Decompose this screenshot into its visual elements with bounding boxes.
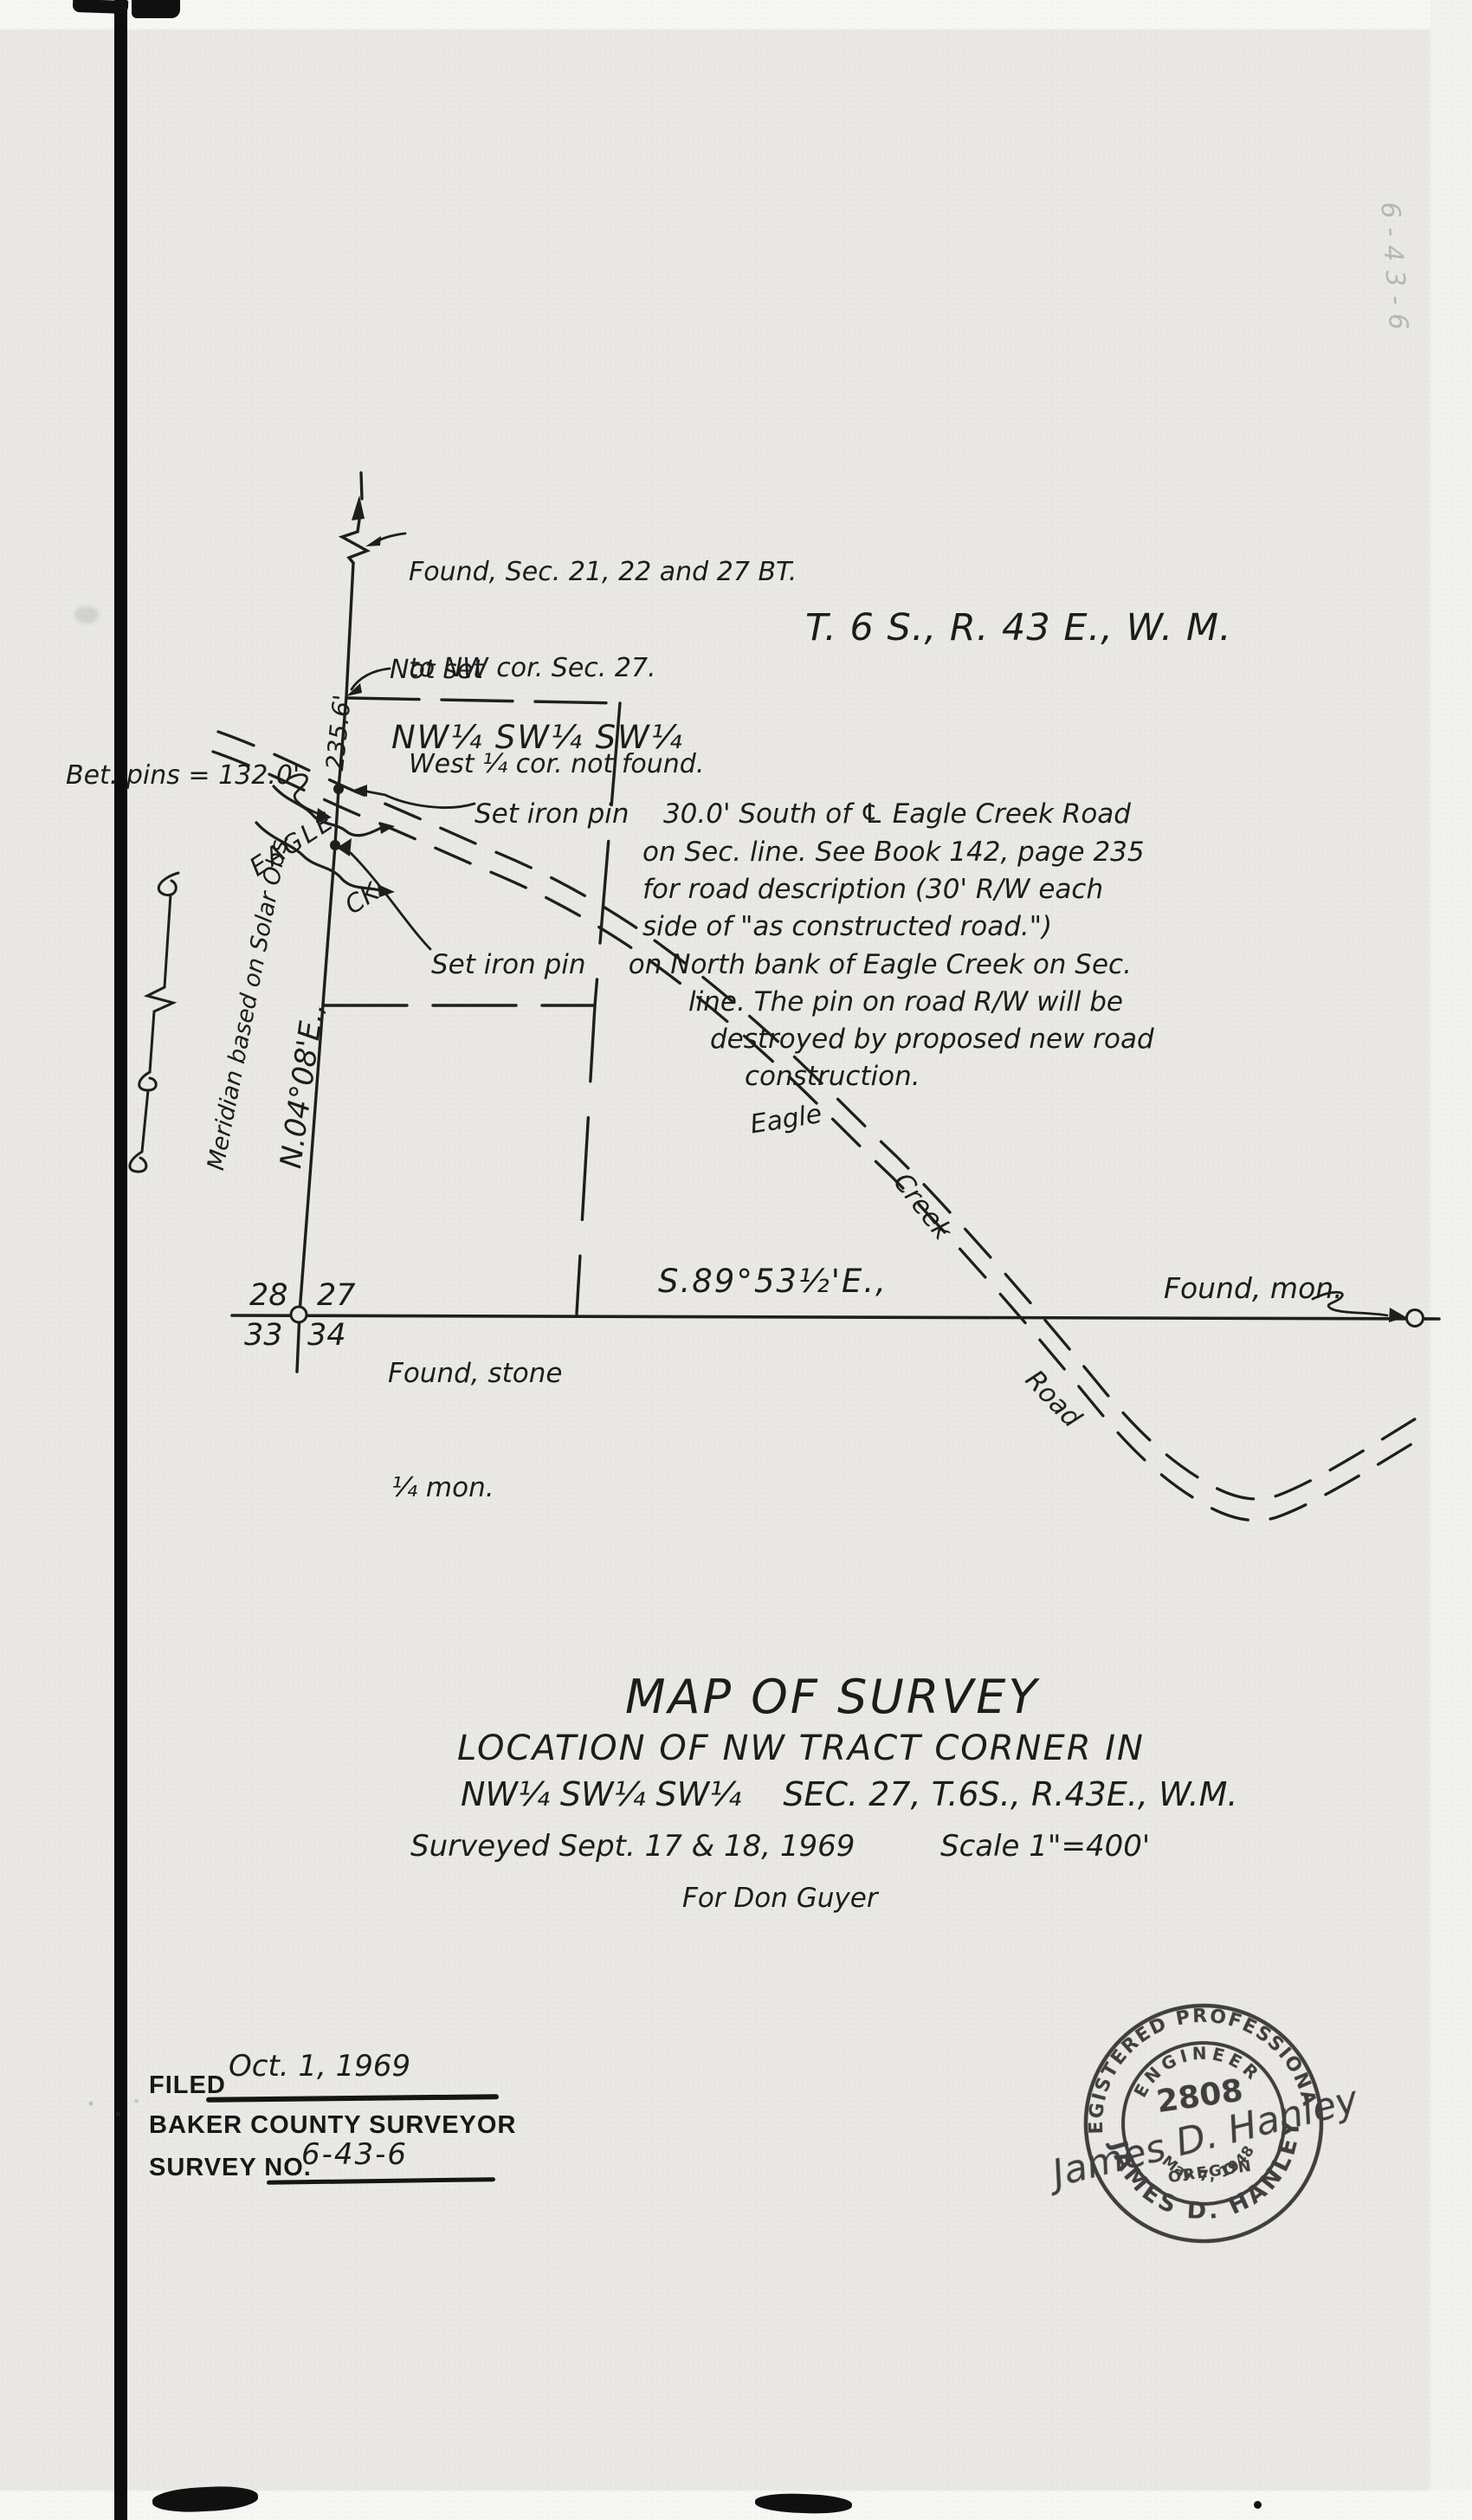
map-subtitle: LOCATION OF NW TRACT CORNER IN: [457, 1728, 1145, 1768]
found-stone-line: ¼ mon.: [391, 1469, 562, 1507]
map-survey-date: Surveyed Sept. 17 & 18, 1969: [410, 1829, 855, 1864]
filed-date: Oct. 1, 1969: [229, 2049, 410, 2084]
iron-pin-road: [333, 784, 344, 794]
corner-note-line: Found, Sec. 21, 22 and 27 BT.: [409, 556, 797, 588]
stamp-arc-top: REGISTERED PROFESSIONAL: [0, 0, 1320, 2291]
creek-pin-note-line: line. The pin on road R/W will be: [688, 986, 1123, 1018]
road-pin-note-line: on Sec. line. See Book 142, page 235: [642, 837, 1145, 868]
map-scale: Scale 1"=400': [940, 1829, 1150, 1864]
map-title: MAP OF SURVEY: [625, 1670, 1039, 1724]
found-stone-line: Found, stone: [388, 1354, 562, 1392]
survey-no-value: 6-43-6: [301, 2137, 408, 2172]
creek-pin-note: Set iron pin on North bank of Eagle Cree…: [0, 0, 34, 187]
not-set-label: Not set: [390, 655, 483, 685]
survey-no-label: SURVEY NO.: [149, 2154, 312, 2182]
creek-pin-note-line: construction.: [745, 1061, 920, 1092]
stone-monument: [291, 1307, 307, 1322]
between-pins-label: Bet. pins = 132.0': [66, 760, 300, 791]
map-linework: REGISTERED PROFESSIONAL JAMES D. HANLEY …: [0, 0, 1472, 2520]
engineer-stamp: REGISTERED PROFESSIONAL JAMES D. HANLEY …: [0, 0, 1377, 2408]
found-mon-label: Found, mon.: [1164, 1271, 1343, 1305]
road-pin-note-line: for road description (30' R/W each: [642, 874, 1103, 905]
found-stone-label: Found, stone ¼ mon.: [388, 1278, 562, 1583]
north-section-line: [297, 473, 367, 1372]
section-number-27: 27: [317, 1278, 356, 1313]
meridian-symbol-icon: [130, 873, 178, 1172]
survey-sheet: 6-43-6: [0, 0, 1472, 2520]
county-surveyor-label: BAKER COUNTY SURVEYOR: [149, 2111, 516, 2140]
filed-label: FILED: [149, 2071, 226, 2100]
map-client: For Don Guyer: [682, 1883, 878, 1914]
tract-label: NW¼ SW¼ SW¼: [391, 719, 684, 756]
map-legal-description: NW¼ SW¼ SW¼ SEC. 27, T.6S., R.43E., W.M.: [461, 1775, 1238, 1813]
township-range-title: T. 6 S., R. 43 E., W. M.: [805, 606, 1232, 649]
section-number-34: 34: [307, 1318, 346, 1353]
creek-pin-note-line: destroyed by proposed new road: [710, 1024, 1154, 1055]
section-number-28: 28: [249, 1278, 288, 1313]
found-monument: [1407, 1310, 1424, 1327]
road-pin-note-line: side of "as constructed road."): [642, 911, 1052, 942]
iron-pin-creek: [330, 840, 340, 850]
creek-pin-note-line: Set iron pin on North bank of Eagle Cree…: [431, 949, 1132, 980]
road-pin-note-line: Set iron pin 30.0' South of ℄ Eagle Cree…: [475, 798, 1131, 830]
south-line-bearing: S.89°53½'E.,: [658, 1263, 888, 1300]
section-number-33: 33: [244, 1318, 283, 1353]
